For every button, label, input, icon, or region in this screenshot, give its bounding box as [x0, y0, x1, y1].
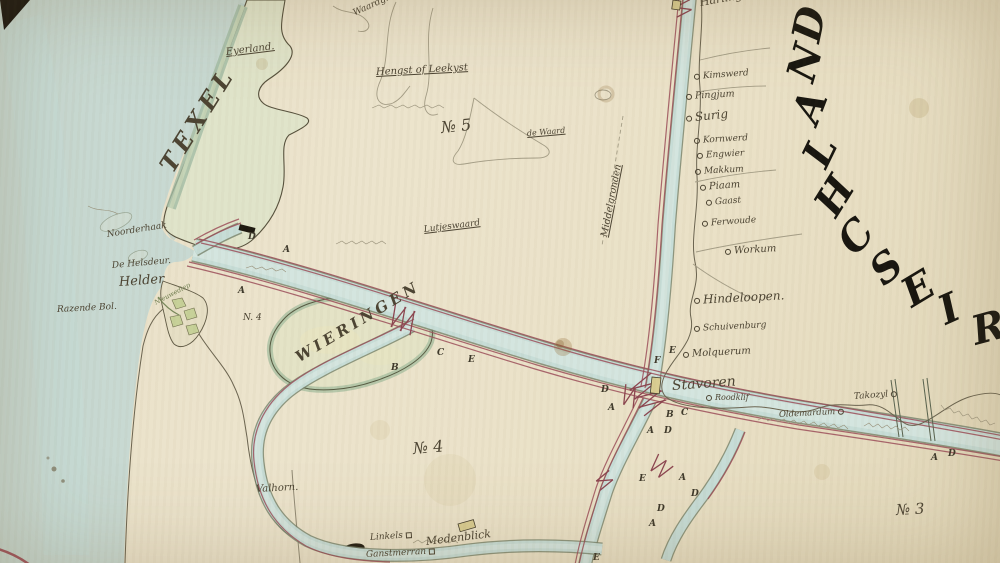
town-blocks — [458, 0, 681, 532]
vriesland-letter: R — [965, 301, 1000, 355]
label-no3: № 3 — [896, 502, 925, 518]
village-ring-icon — [694, 325, 700, 331]
dike-letter: D — [947, 449, 956, 459]
dike-letter: D — [600, 385, 609, 395]
vriesland-letter: L — [792, 129, 847, 176]
dike-letter: E — [592, 553, 600, 563]
label-no4: № 4 — [412, 438, 444, 457]
dike-letter: A — [607, 403, 615, 413]
dike-letter: A — [646, 426, 654, 436]
village-ring-icon — [706, 395, 712, 401]
village-ring-icon — [694, 73, 700, 79]
dike-letter: E — [638, 474, 646, 484]
dike-letter: D — [690, 489, 699, 499]
label-helder: Helder — [119, 273, 165, 289]
village-ring-icon — [683, 351, 689, 357]
region-label-vriesland: R I E S C H L A N D — [777, 2, 1000, 355]
vriesland-letter: A — [781, 84, 837, 134]
dike-letter: D — [656, 504, 665, 514]
dike-letter: A — [678, 473, 686, 483]
dike-letter: A — [648, 519, 656, 529]
dike-letter: A — [237, 286, 245, 296]
dike-letter: E — [668, 346, 676, 356]
village-ring-icon — [694, 137, 700, 143]
village-ring-icon — [697, 152, 703, 158]
dike-letter: C — [437, 348, 445, 358]
dike-letter: F — [653, 356, 661, 366]
village-square-icon — [406, 532, 412, 538]
dike-letter: E — [467, 355, 475, 365]
village-pingjum: Pingjum — [686, 89, 735, 101]
village-ring-icon — [891, 390, 897, 396]
village-ring-icon — [702, 220, 708, 226]
dike-letter: B — [665, 410, 674, 420]
village-square-icon — [429, 548, 435, 554]
label-roodklif: Roodklif — [706, 394, 749, 402]
village-ring-icon — [694, 297, 700, 303]
dike-letter: A — [930, 453, 938, 463]
dike-letter: B — [390, 363, 399, 373]
dike-letter: A — [282, 245, 290, 255]
village-ring-icon — [706, 199, 712, 205]
dike-letter: D — [663, 426, 672, 436]
village-ring-icon — [695, 168, 701, 174]
village-ring-icon — [686, 115, 693, 122]
village-ring-icon — [686, 93, 692, 99]
label-n4-small: N. 4 — [243, 314, 262, 323]
dike-letter: C — [681, 408, 689, 418]
village-ring-icon — [838, 408, 844, 414]
dike-letter: D — [247, 232, 256, 242]
label-no5: № 5 — [440, 117, 472, 136]
village-ring-icon — [725, 248, 731, 254]
map-canvas[interactable]: R I E S C H L A N D D A A B C E F E D A … — [0, 0, 1000, 563]
village-ring-icon — [700, 184, 706, 190]
sluice-hatches — [239, 0, 693, 490]
